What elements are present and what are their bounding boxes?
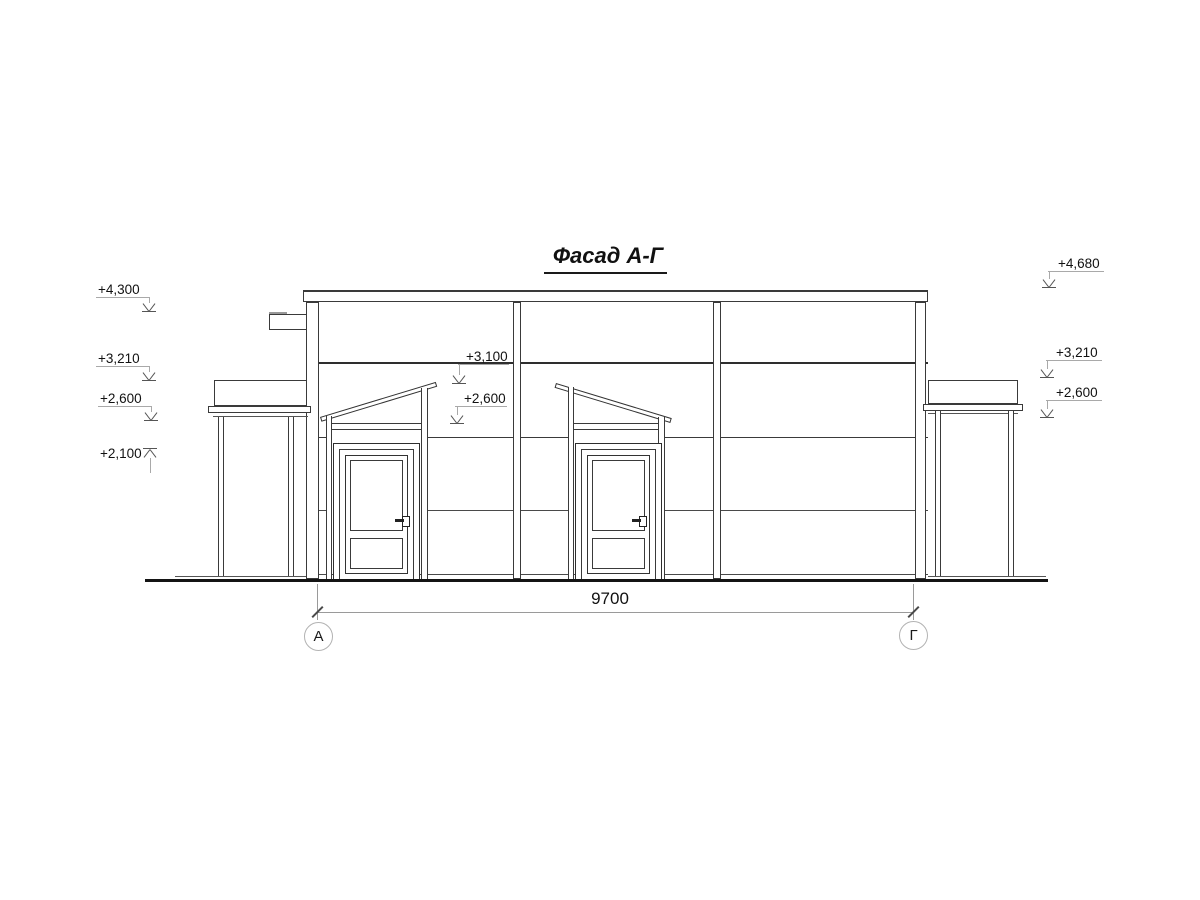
porch-roof-slab: [214, 380, 307, 406]
mark-leader: [98, 406, 152, 407]
column-axis-b: [513, 302, 521, 579]
mark-leader: [455, 406, 507, 407]
panel-line-2600: [427, 437, 568, 438]
column-axis-g: [915, 302, 926, 579]
canopy-post-right: [421, 388, 428, 582]
porch-column: [1008, 411, 1014, 577]
porch-column: [935, 411, 941, 577]
elevation-value: +2,600: [1056, 386, 1098, 400]
elevation-value: +2,600: [464, 392, 506, 406]
mark-arrow: [150, 449, 157, 458]
column-axis-v: [713, 302, 721, 579]
porch-cornice: [208, 406, 311, 413]
mark-tick: [1040, 377, 1054, 378]
drawing-title: Фасад А-Г: [518, 243, 698, 269]
porch-column: [218, 417, 224, 577]
title-underline: [544, 272, 667, 274]
panel-line-3100: [306, 362, 928, 364]
porch-cornice-line: [928, 413, 1018, 414]
mark-stem: [459, 365, 460, 375]
mark-leader: [96, 366, 150, 367]
elevation-value: +4,680: [1058, 257, 1100, 271]
mark-tick: [142, 380, 156, 381]
mark-stem: [1049, 272, 1050, 279]
porch-cornice: [923, 404, 1023, 411]
mark-leader: [1046, 360, 1102, 361]
porch-base-line: [928, 576, 1046, 577]
mark-leader: [1046, 400, 1102, 401]
porch-column: [288, 417, 294, 577]
mark-leader: [458, 364, 509, 365]
dimension-line: [317, 612, 914, 613]
elevation-value: +2,100: [100, 447, 142, 461]
mark-stem: [457, 407, 458, 415]
mark-tick: [1042, 287, 1056, 288]
canopy-beam: [574, 423, 658, 430]
axis-marker-a: А: [304, 622, 333, 651]
elevation-value: +2,600: [100, 392, 142, 406]
vent-protrusion: [269, 314, 307, 330]
mark-stem: [150, 458, 151, 473]
mark-tick: [144, 420, 158, 421]
mark-stem: [149, 367, 150, 372]
parapet: [303, 290, 928, 302]
elevation-value: +3,210: [98, 352, 140, 366]
door-bottom-panel: [350, 538, 403, 569]
facade-drawing: Фасад А-Г: [0, 0, 1200, 900]
mark-stem: [149, 298, 150, 303]
panel-line-2600: [664, 437, 928, 438]
elevation-value: +3,210: [1056, 346, 1098, 360]
column-axis-a: [306, 302, 319, 579]
dimension-value: 9700: [565, 589, 655, 609]
door-bottom-panel: [592, 538, 645, 569]
mark-stem: [151, 407, 152, 412]
door-handle-lever: [632, 519, 641, 522]
porch-base-line: [175, 576, 306, 577]
door-canopy: [320, 382, 437, 422]
mark-stem: [1047, 401, 1048, 409]
elevation-value: +3,100: [466, 350, 508, 364]
canopy-beam: [332, 423, 421, 430]
canopy-post-left: [568, 387, 574, 582]
extension-line-a: [317, 584, 318, 620]
axis-label-a: А: [313, 628, 323, 645]
mark-tick: [142, 311, 156, 312]
mark-tick: [450, 423, 464, 424]
door-handle-lever: [395, 519, 404, 522]
axis-label-g: Г: [909, 627, 917, 644]
extension-line-g: [913, 584, 914, 620]
axis-marker-g: Г: [899, 621, 928, 650]
mark-stem: [1047, 361, 1048, 369]
canopy-post-left: [326, 416, 332, 582]
elevation-value: +4,300: [98, 283, 140, 297]
ground-line: [145, 579, 1048, 582]
mark-leader: [96, 297, 150, 298]
mark-tick: [452, 383, 466, 384]
porch-roof-slab: [928, 380, 1018, 404]
mark-leader: [1048, 271, 1104, 272]
mark-tick: [1040, 417, 1054, 418]
panel-line-low: [664, 510, 928, 511]
panel-line-low: [427, 510, 568, 511]
